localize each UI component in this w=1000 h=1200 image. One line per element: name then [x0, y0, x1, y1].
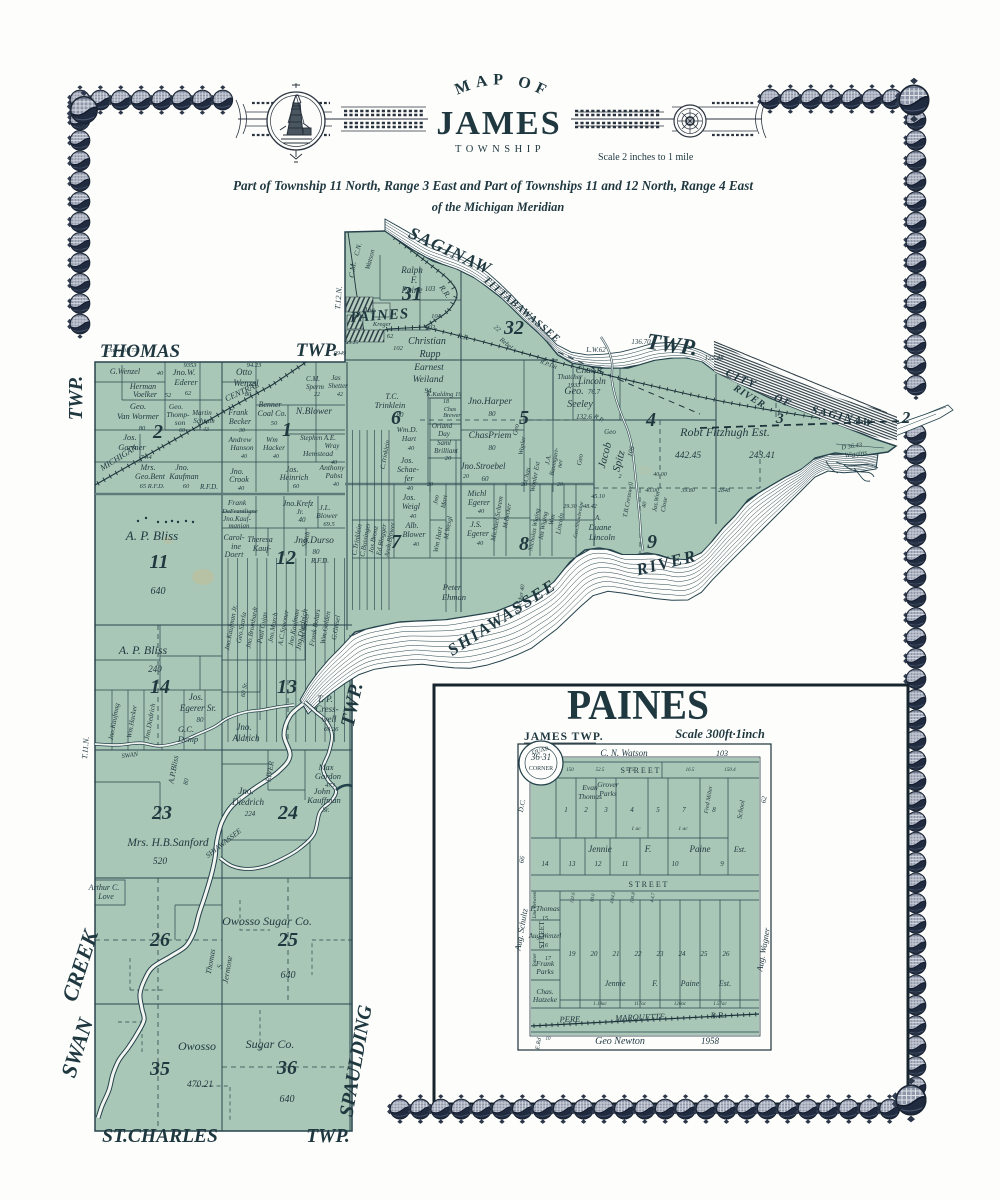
svg-text:Blower: Blower	[316, 511, 338, 520]
svg-text:17: 17	[545, 956, 552, 962]
svg-text:80: 80	[489, 410, 497, 418]
svg-text:of the Michigan Meridian: of the Michigan Meridian	[432, 200, 565, 214]
svg-text:43: 43	[203, 426, 209, 433]
svg-text:Paine: Paine	[680, 979, 700, 988]
svg-text:Trinklein: Trinklein	[375, 400, 406, 410]
svg-text:Doert: Doert	[224, 550, 244, 559]
svg-text:CORNER: CORNER	[529, 766, 553, 772]
svg-text:Hanson: Hanson	[229, 443, 254, 452]
svg-text:40: 40	[333, 481, 339, 488]
svg-text:Jno.: Jno.	[175, 463, 189, 472]
svg-text:2: 2	[619, 474, 622, 480]
svg-text:29.25: 29.25	[346, 340, 359, 346]
svg-text:Alb.: Alb.	[404, 521, 418, 530]
svg-text:Jos.: Jos.	[123, 432, 136, 442]
svg-text:F.: F.	[410, 275, 418, 285]
svg-text:20: 20	[427, 482, 433, 488]
svg-text:1: 1	[282, 419, 292, 441]
svg-text:60: 60	[293, 483, 300, 490]
svg-text:8: 8	[712, 806, 716, 814]
svg-text:9: 9	[720, 860, 724, 868]
svg-text:P.Thomas: P.Thomas	[529, 904, 559, 913]
svg-text:PERE: PERE	[558, 1014, 581, 1025]
svg-text:L.W.62: L.W.62	[585, 346, 606, 354]
svg-text:Van Wormer: Van Wormer	[117, 411, 160, 421]
svg-text:well: well	[322, 714, 337, 724]
svg-text:Blower: Blower	[402, 530, 426, 539]
svg-text:13: 13	[277, 676, 297, 698]
svg-text:26: 26	[723, 950, 731, 958]
svg-text:JAMES: JAMES	[436, 105, 561, 142]
svg-text:Jos.: Jos.	[189, 692, 203, 702]
svg-text:Frank: Frank	[227, 408, 248, 417]
svg-text:40: 40	[477, 540, 484, 547]
svg-text:80: 80	[397, 411, 405, 419]
svg-text:50: 50	[271, 420, 278, 427]
svg-text:122.48: 122.48	[704, 354, 724, 362]
svg-text:Paine: Paine	[689, 844, 711, 854]
svg-text:Jr.: Jr.	[297, 508, 304, 516]
svg-text:C. N. Watson: C. N. Watson	[600, 748, 648, 758]
svg-text:240: 240	[148, 664, 162, 674]
svg-text:Jos.: Jos.	[401, 456, 414, 465]
svg-text:69.5: 69.5	[323, 521, 335, 528]
svg-text:52.5: 52.5	[626, 768, 635, 773]
svg-text:7: 7	[682, 806, 686, 814]
svg-text:Owosso Sugar Co.: Owosso Sugar Co.	[222, 914, 312, 928]
svg-text:Voelker: Voelker	[133, 390, 158, 399]
svg-text:102: 102	[393, 345, 404, 352]
svg-text:48.42: 48.42	[583, 503, 597, 510]
svg-text:Sperm: Sperm	[306, 383, 324, 391]
svg-text:Scale 2 inches to 1 mile: Scale 2 inches to 1 mile	[598, 152, 694, 163]
svg-text:Peter: Peter	[442, 582, 462, 592]
svg-text:103: 103	[716, 749, 728, 758]
svg-text:Egerer: Egerer	[466, 529, 490, 538]
svg-text:Seeley: Seeley	[567, 399, 593, 410]
svg-text:Carol-: Carol-	[223, 533, 244, 542]
svg-text:10: 10	[546, 1037, 552, 1042]
svg-text:2: 2	[584, 806, 588, 814]
svg-text:R.R.: R.R.	[709, 1010, 725, 1021]
svg-text:Brewer: Brewer	[443, 413, 461, 419]
svg-text:Aug.Wenzel: Aug.Wenzel	[528, 932, 562, 940]
svg-text:39.80: 39.80	[680, 488, 695, 494]
svg-text:Mrs. H.B.Sanford: Mrs. H.B.Sanford	[126, 837, 209, 849]
svg-text:Weiland: Weiland	[413, 375, 444, 385]
svg-text:1.57ac: 1.57ac	[713, 1002, 727, 1007]
svg-text:117ac: 117ac	[634, 1002, 647, 1007]
svg-text:470.21: 470.21	[187, 1080, 213, 1090]
svg-text:520: 520	[153, 857, 168, 867]
svg-text:22: 22	[314, 392, 320, 398]
svg-text:Earnest: Earnest	[413, 363, 444, 373]
svg-text:Benner: Benner	[258, 400, 282, 409]
svg-text:K.Kalding 19: K.Kalding 19	[425, 391, 462, 398]
svg-text:Hemstead: Hemstead	[302, 449, 333, 458]
svg-text:25: 25	[277, 929, 298, 951]
svg-text:Geo Newton: Geo Newton	[595, 1036, 645, 1047]
svg-text:PAINES: PAINES	[567, 683, 709, 729]
svg-text:40: 40	[407, 485, 414, 492]
svg-text:15: 15	[542, 916, 548, 922]
svg-text:103: 103	[425, 285, 436, 293]
svg-text:16.5: 16.5	[686, 768, 695, 773]
svg-text:120ac: 120ac	[674, 1002, 687, 1007]
svg-text:Ehman: Ehman	[441, 592, 466, 602]
svg-text:9: 9	[647, 531, 657, 553]
svg-text:11: 11	[622, 860, 628, 868]
svg-text:Geo: Geo	[604, 428, 616, 436]
svg-text:Diedrich: Diedrich	[231, 797, 264, 807]
svg-text:J.S.: J.S.	[470, 520, 482, 529]
svg-text:40.00: 40.00	[645, 487, 659, 494]
svg-text:Day: Day	[437, 430, 451, 438]
svg-text:20: 20	[521, 482, 527, 488]
svg-text:DeFrantligne: DeFrantligne	[221, 508, 257, 515]
svg-text:20: 20	[463, 474, 469, 480]
svg-text:1 ac: 1 ac	[678, 826, 688, 832]
svg-text:S T R E E T: S T R E E T	[629, 880, 668, 889]
svg-text:A. P. Bliss: A. P. Bliss	[118, 643, 168, 657]
svg-text:52.5: 52.5	[596, 768, 605, 773]
svg-text:N.Blower: N.Blower	[295, 407, 332, 417]
svg-text:Mrs.: Mrs.	[140, 463, 156, 472]
svg-text:40: 40	[478, 508, 485, 515]
svg-text:Stephen A.E.: Stephen A.E.	[300, 434, 336, 442]
svg-text:Gartner: Gartner	[118, 442, 146, 452]
svg-text:Egerer: Egerer	[467, 498, 491, 507]
svg-text:Ederer: Ederer	[173, 377, 198, 387]
svg-text:Becker: Becker	[229, 417, 252, 426]
svg-text:TOWNSHIP: TOWNSHIP	[455, 144, 545, 155]
svg-text:4: 4	[645, 409, 656, 431]
svg-text:MARQUETTE: MARQUETTE	[614, 1011, 666, 1023]
svg-text:21: 21	[613, 950, 620, 958]
svg-text:Jas: Jas	[331, 374, 341, 382]
svg-text:Owosso: Owosso	[178, 1039, 216, 1053]
svg-text:Est.: Est.	[718, 979, 731, 988]
svg-text:2848: 2848	[718, 487, 730, 494]
svg-text:442.45: 442.45	[675, 451, 701, 461]
svg-text:9353: 9353	[184, 362, 198, 369]
svg-text:Aug.: Aug.	[362, 306, 376, 314]
svg-text:Love: Love	[97, 892, 114, 901]
svg-text:Hacker: Hacker	[262, 443, 285, 452]
svg-text:13: 13	[569, 860, 577, 868]
svg-text:Weigl: Weigl	[402, 502, 421, 511]
svg-text:Hatzeke: Hatzeke	[532, 995, 558, 1004]
svg-text:Grover: Grover	[597, 780, 618, 789]
svg-text:Sugar Co.: Sugar Co.	[246, 1037, 295, 1051]
svg-text:30: 30	[238, 428, 245, 434]
svg-text:29.30: 29.30	[563, 504, 577, 510]
svg-text:Wenzel: Wenzel	[233, 378, 259, 388]
svg-text:F.: F.	[644, 844, 652, 854]
svg-text:Jno.Harper: Jno.Harper	[468, 397, 512, 407]
svg-text:Heinrich: Heinrich	[279, 473, 308, 482]
svg-text:A.: A.	[594, 514, 601, 522]
svg-text:243.41: 243.41	[749, 451, 775, 461]
svg-text:5: 5	[656, 806, 660, 814]
svg-text:Jno.: Jno.	[236, 722, 251, 732]
svg-text:fer: fer	[405, 474, 415, 483]
svg-text:26: 26	[149, 929, 170, 951]
svg-text:Jno.Stroebel: Jno.Stroebel	[461, 461, 506, 471]
svg-text:ST.CHARLES: ST.CHARLES	[102, 1126, 218, 1147]
svg-text:Scale 300ft·1inch: Scale 300ft·1inch	[675, 727, 765, 741]
svg-text:Ralph: Ralph	[400, 265, 423, 275]
svg-text:Part of Township 11 North, Ran: Part of Township 11 North, Range 3 East …	[233, 178, 753, 193]
svg-text:Brilliant: Brilliant	[434, 447, 459, 455]
svg-text:62: 62	[387, 333, 394, 340]
svg-text:52: 52	[165, 392, 172, 399]
svg-text:Gordon: Gordon	[315, 771, 341, 781]
svg-text:60: 60	[179, 428, 185, 434]
svg-text:40: 40	[410, 513, 417, 520]
svg-text:Parks: Parks	[535, 967, 554, 976]
svg-text:Egerer Sr.: Egerer Sr.	[179, 703, 216, 713]
svg-text:60: 60	[183, 483, 190, 490]
svg-text:74.4: 74.4	[140, 454, 152, 461]
svg-text:65 R.F.D.: 65 R.F.D.	[140, 483, 165, 490]
svg-text:3: 3	[603, 806, 608, 814]
svg-text:40: 40	[641, 501, 649, 508]
svg-text:Churchill 73: Churchill 73	[105, 347, 139, 354]
svg-text:1933: 1933	[568, 382, 582, 389]
svg-text:Jennie: Jennie	[588, 844, 611, 854]
svg-text:136.70: 136.70	[631, 338, 651, 346]
svg-text:23: 23	[151, 802, 172, 824]
svg-text:24: 24	[277, 802, 298, 824]
svg-text:Cress-: Cress-	[315, 704, 338, 714]
svg-text:Shetter: Shetter	[328, 382, 348, 390]
svg-text:Kauffman: Kauffman	[306, 795, 341, 805]
svg-text:80: 80	[245, 391, 252, 398]
svg-text:150.4: 150.4	[724, 768, 736, 773]
svg-text:Jno.: Jno.	[238, 786, 253, 796]
svg-text:40: 40	[273, 453, 279, 460]
svg-text:Wm.D.: Wm.D.	[397, 425, 418, 434]
svg-text:19: 19	[569, 950, 577, 958]
svg-text:Theresa: Theresa	[247, 535, 272, 544]
svg-text:TWP.: TWP.	[306, 1126, 350, 1147]
svg-text:Demp: Demp	[177, 734, 198, 744]
svg-text:Jos.: Jos.	[403, 493, 416, 502]
svg-text:22: 22	[635, 950, 643, 958]
svg-text:40: 40	[241, 453, 247, 460]
svg-text:40: 40	[238, 485, 245, 492]
svg-text:Schram: Schram	[193, 417, 214, 425]
svg-text:Aldrich: Aldrich	[232, 733, 260, 743]
svg-text:40: 40	[408, 445, 415, 452]
svg-text:G.C.: G.C.	[178, 724, 194, 734]
svg-text:32: 32	[503, 317, 524, 339]
svg-text:Lincoln: Lincoln	[588, 532, 615, 542]
svg-text:20: 20	[557, 482, 563, 488]
svg-text:9949: 9949	[334, 350, 346, 357]
svg-text:Kaufman: Kaufman	[168, 472, 198, 481]
svg-text:Paine: Paine	[401, 285, 423, 295]
svg-text:Evan: Evan	[581, 783, 598, 792]
svg-text:94.23: 94.23	[247, 362, 262, 369]
svg-text:640: 640	[281, 970, 296, 981]
svg-text:103: 103	[425, 324, 436, 332]
svg-text:1958: 1958	[701, 1036, 720, 1046]
svg-text:Coal Co.: Coal Co.	[258, 409, 287, 418]
svg-text:manian: manian	[229, 522, 251, 530]
svg-text:F.: F.	[651, 979, 658, 988]
svg-text:Rupp: Rupp	[418, 349, 440, 360]
svg-text:A. P. Bliss: A. P. Bliss	[125, 528, 179, 543]
svg-text:104: 104	[431, 313, 442, 320]
svg-text:80: 80	[313, 548, 321, 556]
svg-text:Duane: Duane	[588, 522, 612, 532]
svg-text:11: 11	[150, 551, 169, 573]
svg-text:Kauf-: Kauf-	[252, 544, 272, 553]
svg-text:Parks: Parks	[598, 789, 617, 798]
svg-text:36: 36	[276, 1057, 297, 1079]
svg-text:Geo.Bent: Geo.Bent	[135, 472, 166, 481]
svg-text:Schae-: Schae-	[397, 465, 419, 474]
svg-text:132.6: 132.6	[576, 413, 592, 421]
svg-text:40.00: 40.00	[653, 471, 667, 478]
svg-text:14: 14	[542, 860, 550, 868]
svg-text:Sr.: Sr.	[322, 806, 329, 814]
svg-text:150: 150	[566, 768, 574, 773]
svg-text:Michl: Michl	[467, 489, 487, 498]
svg-text:640: 640	[151, 586, 166, 597]
svg-text:TWP.: TWP.	[65, 376, 87, 421]
svg-text:Martin: Martin	[191, 409, 212, 417]
svg-text:14: 14	[150, 676, 170, 698]
svg-text:45.10: 45.10	[591, 493, 605, 500]
svg-text:Crook: Crook	[229, 475, 249, 484]
svg-text:40: 40	[299, 516, 307, 524]
svg-text:ChasPriem: ChasPriem	[469, 431, 512, 441]
svg-text:Jennie: Jennie	[605, 979, 626, 988]
svg-text:80: 80	[197, 716, 205, 724]
svg-text:Geo.: Geo.	[130, 401, 146, 411]
svg-text:40: 40	[157, 370, 164, 377]
svg-text:640: 640	[280, 1094, 295, 1105]
svg-text:62: 62	[185, 390, 192, 397]
svg-text:60: 60	[482, 475, 490, 483]
svg-text:Orland: Orland	[432, 422, 453, 430]
svg-text:69.26: 69.26	[324, 726, 339, 733]
svg-text:20: 20	[591, 950, 599, 958]
svg-text:80: 80	[489, 444, 497, 452]
svg-text:224: 224	[245, 810, 256, 818]
svg-text:Christian: Christian	[408, 336, 446, 347]
svg-text:TWP.: TWP.	[296, 340, 338, 361]
svg-text:2: 2	[152, 421, 163, 443]
svg-text:Hart: Hart	[401, 434, 417, 443]
svg-text:C.M.: C.M.	[347, 261, 357, 278]
svg-text:Frank: Frank	[227, 498, 247, 507]
svg-text:Jno.Krefz: Jno.Krefz	[283, 499, 314, 508]
svg-text:20: 20	[445, 455, 452, 462]
svg-text:1: 1	[564, 806, 568, 814]
svg-text:12: 12	[595, 860, 603, 868]
svg-text:R.F.D.: R.F.D.	[199, 483, 218, 491]
svg-text:10: 10	[672, 860, 680, 868]
svg-text:40: 40	[413, 541, 419, 548]
svg-text:1.18ac: 1.18ac	[593, 1002, 607, 1007]
svg-text:23: 23	[657, 950, 665, 958]
svg-text:Est.: Est.	[733, 845, 746, 854]
svg-text:G.Wenzel: G.Wenzel	[110, 367, 141, 376]
svg-text:18: 18	[443, 399, 449, 405]
svg-text:2: 2	[901, 408, 911, 427]
svg-text:R.F.D.: R.F.D.	[310, 557, 329, 565]
svg-text:son: son	[175, 418, 186, 427]
svg-text:4: 4	[630, 806, 634, 814]
svg-text:12: 12	[276, 547, 296, 569]
svg-text:25: 25	[701, 950, 709, 958]
svg-text:80: 80	[139, 425, 146, 432]
svg-text:Saml: Saml	[437, 439, 451, 447]
svg-text:Pabst: Pabst	[324, 471, 343, 480]
svg-text:T. P.: T. P.	[317, 694, 332, 704]
svg-text:24: 24	[679, 950, 687, 958]
svg-text:Thatcher: Thatcher	[557, 373, 583, 381]
svg-text:35: 35	[149, 1058, 170, 1080]
svg-text:76.7: 76.7	[588, 388, 601, 396]
svg-text:Arthur C.: Arthur C.	[88, 883, 120, 892]
svg-text:Robt Fitzhugh Est.: Robt Fitzhugh Est.	[679, 425, 770, 439]
svg-text:3: 3	[775, 411, 784, 427]
svg-text:Kreger: Kreger	[372, 321, 392, 328]
svg-text:C.M.: C.M.	[306, 375, 320, 383]
svg-text:1 ac: 1 ac	[631, 826, 641, 832]
svg-text:16: 16	[542, 943, 548, 949]
svg-text:42: 42	[337, 391, 343, 398]
